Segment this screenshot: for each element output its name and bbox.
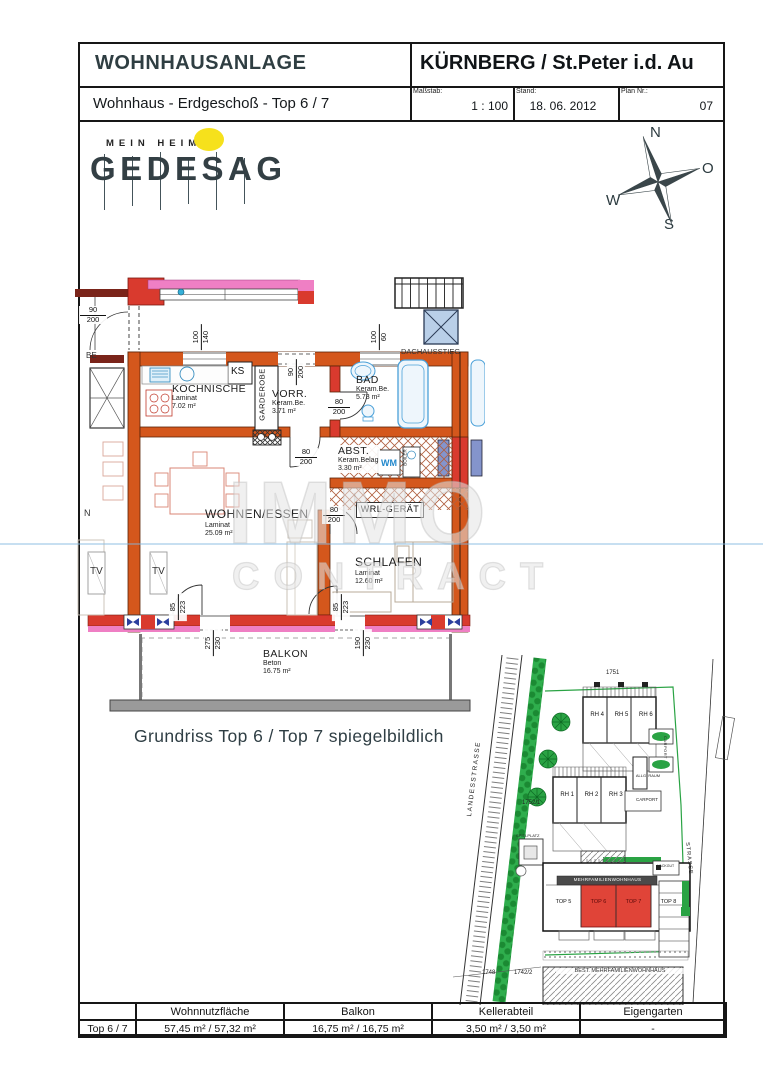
compass-rose-icon xyxy=(602,122,714,234)
room-label-vorraum: VORR. Keram.Be. 3.71 m² xyxy=(272,388,307,416)
plan-title: Wohnhaus - Erdgeschoß - Top 6 / 7 xyxy=(93,95,329,112)
project-location: KÜRNBERG / St.Peter i.d. Au xyxy=(420,52,694,75)
project-title: WOHNHAUSANLAGE xyxy=(95,52,306,75)
date-value: 18. 06. 2012 xyxy=(513,99,613,113)
value-balkon: 16,75 m² / 16,75 m² xyxy=(284,1020,432,1037)
gedesag-logo: MEIN HEIM GEDESAG xyxy=(88,126,273,216)
top6-label: TOP 6 xyxy=(581,899,616,905)
carport-label-vertical: CARPORT xyxy=(663,736,668,759)
mehrfamilienwohnhaus-band-label: MEHRFAMILIENWOHNHAUS xyxy=(558,877,657,882)
plan-number-label: Plan Nr.: xyxy=(621,88,648,95)
room-label-bad: BAD Keram.Be. 5.73 m² xyxy=(356,374,389,402)
neighbour-room-fragment: N xyxy=(84,508,91,518)
top-unit-labels: TOP 5 TOP 6 TOP 7 TOP 8 xyxy=(546,899,686,905)
top8-label: TOP 8 xyxy=(651,899,686,905)
summary-row-label: Top 6 / 7 xyxy=(79,1020,136,1037)
watermark-immo: IMMO xyxy=(228,462,492,564)
value-wohnnutzflaeche: 57,45 m² / 57,32 m² xyxy=(136,1020,284,1037)
dim-balcony-door-left: 85223 xyxy=(169,593,187,621)
existing-building-label: BEST. MEHRFAMILIENWOHNHAUS xyxy=(556,968,684,974)
rh5-label: RH 5 xyxy=(609,712,633,718)
parcel-1742-2: 1742/2 xyxy=(514,970,532,976)
room-label-balkon: BALKON Beton 16.75 m² xyxy=(263,648,308,676)
value-kellerabteil: 3,50 m² / 3,50 m² xyxy=(432,1020,580,1037)
header-eigengarten: Eigengarten xyxy=(580,1003,726,1020)
rowhouse-labels-top: RH 4 RH 5 RH 6 xyxy=(585,712,658,718)
garderobe-label: GARDEROBE xyxy=(258,365,267,425)
scale-label: Maßstab: xyxy=(413,88,442,95)
dim-bad-door: 80200 xyxy=(327,398,351,416)
plan-number-value: 07 xyxy=(618,99,713,113)
value-eigengarten: - xyxy=(580,1020,726,1037)
neighbour-garderobe-fragment: BE xyxy=(86,351,97,360)
dim-top-door: 90200 xyxy=(287,358,305,386)
logo-tagline: MEIN HEIM xyxy=(106,138,201,149)
room-label-kochnische: KOCHNISCHE Laminat 7.02 m² xyxy=(172,383,246,411)
dim-kitchen-window: 100140 xyxy=(192,323,210,351)
header-kellerabteil: Kellerabteil xyxy=(432,1003,580,1020)
top5-label: TOP 5 xyxy=(546,899,581,905)
gravel-path xyxy=(543,951,688,960)
tv-label-left: TV xyxy=(90,566,103,577)
rh3-label: RH 3 xyxy=(604,792,628,798)
allg-raum-label: ALLG. RAUM xyxy=(634,760,662,790)
scale-value: 1 : 100 xyxy=(410,99,508,113)
rh6-label: RH 6 xyxy=(634,712,658,718)
rowhouse-labels-mid: RH 1 RH 2 RH 3 xyxy=(555,792,628,798)
parcel-1752-1: 1752/1 xyxy=(522,800,540,806)
header-wohnnutzflaeche: Wohnnutzfläche xyxy=(136,1003,284,1020)
plan-caption: Grundriss Top 6 / Top 7 spiegelbildlich xyxy=(134,726,444,747)
bottom-wall xyxy=(88,614,470,633)
summary-value-row: Top 6 / 7 57,45 m² / 57,32 m² 16,75 m² /… xyxy=(79,1020,726,1037)
summary-corner-cell xyxy=(79,1003,136,1020)
dim-balcony-window-left: 275230 xyxy=(204,629,222,657)
hackgut-label: HACKGUT xyxy=(657,864,674,868)
tv-label-right: TV xyxy=(152,566,165,577)
ks-label: KS xyxy=(231,366,244,377)
logo-name: GEDESAG xyxy=(90,150,287,188)
dim-bad-window: 10060 xyxy=(370,323,388,351)
stairs xyxy=(395,278,463,308)
rh2-label: RH 2 xyxy=(579,792,603,798)
spielplatz-label: SPIELPLATZ xyxy=(516,833,540,838)
header-balkon: Balkon xyxy=(284,1003,432,1020)
playground xyxy=(516,839,543,876)
summary-table: Wohnnutzfläche Balkon Kellerabteil Eigen… xyxy=(78,1002,727,1038)
scanned-floorplan-document: { "header": { "project": "WOHNHAUSANLAGE… xyxy=(0,0,763,1080)
scan-fold-line xyxy=(0,543,763,545)
carport-label-box: CARPORT xyxy=(630,797,664,802)
logo-sun-icon xyxy=(194,128,224,151)
summary-header-row: Wohnnutzfläche Balkon Kellerabteil Eigen… xyxy=(79,1003,726,1020)
top7-label: TOP 7 xyxy=(616,899,651,905)
date-label: Stand: xyxy=(516,88,536,95)
rh1-label: RH 1 xyxy=(555,792,579,798)
siteplan-drawing xyxy=(453,655,745,1005)
parcel-1748: 1748 xyxy=(482,970,495,976)
watermark-contract: CONTRACT xyxy=(232,556,557,599)
dachausstieg-symbol xyxy=(424,310,458,344)
road xyxy=(460,655,522,1005)
dim-balcony-window-right: 190230 xyxy=(354,629,372,657)
parcel-1751: 1751 xyxy=(606,670,619,676)
rh4-label: RH 4 xyxy=(585,712,609,718)
header-vline-title xyxy=(410,42,412,86)
rowhouses-mid xyxy=(553,767,626,851)
dim-entry-door: 90200 xyxy=(79,306,107,324)
dachausstieg-label: DACHAUSSTIEG xyxy=(401,347,463,356)
